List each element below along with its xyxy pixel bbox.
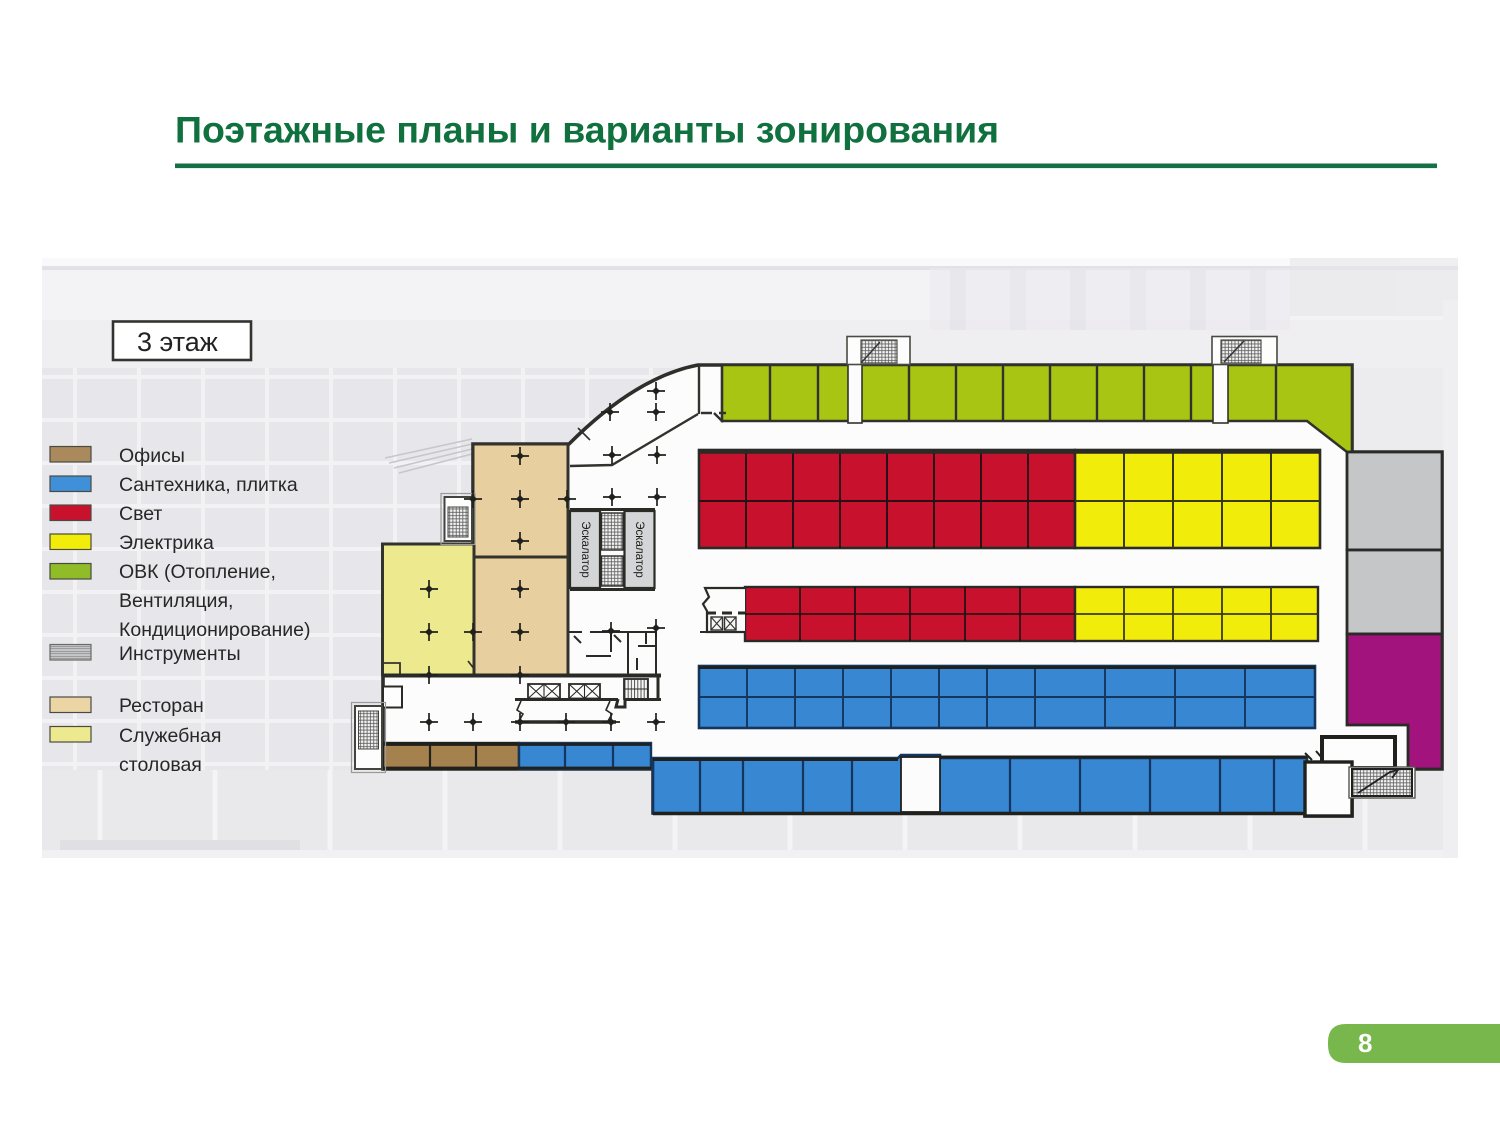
svg-text:3 этаж: 3 этаж [137,327,218,357]
svg-text:Вентиляция,: Вентиляция, [119,590,233,612]
svg-text:Сантехника, плитка: Сантехника, плитка [119,474,298,496]
svg-text:Офисы: Офисы [119,445,185,467]
svg-text:Кондиционирование): Кондиционирование) [119,619,311,641]
svg-text:столовая: столовая [119,754,202,776]
svg-text:Эскалатор: Эскалатор [579,521,591,577]
svg-text:Инструменты: Инструменты [119,643,241,665]
svg-text:ОВК (Отопление,: ОВК (Отопление, [119,561,276,583]
svg-text:Свет: Свет [119,503,162,525]
svg-text:Эскалатор: Эскалатор [633,521,645,577]
svg-text:Поэтажные планы и варианты зон: Поэтажные планы и варианты зонирования [175,109,999,151]
svg-text:Служебная: Служебная [119,725,221,747]
svg-text:8: 8 [1358,1028,1372,1058]
svg-text:Ресторан: Ресторан [119,695,204,717]
svg-text:Электрика: Электрика [119,532,214,554]
